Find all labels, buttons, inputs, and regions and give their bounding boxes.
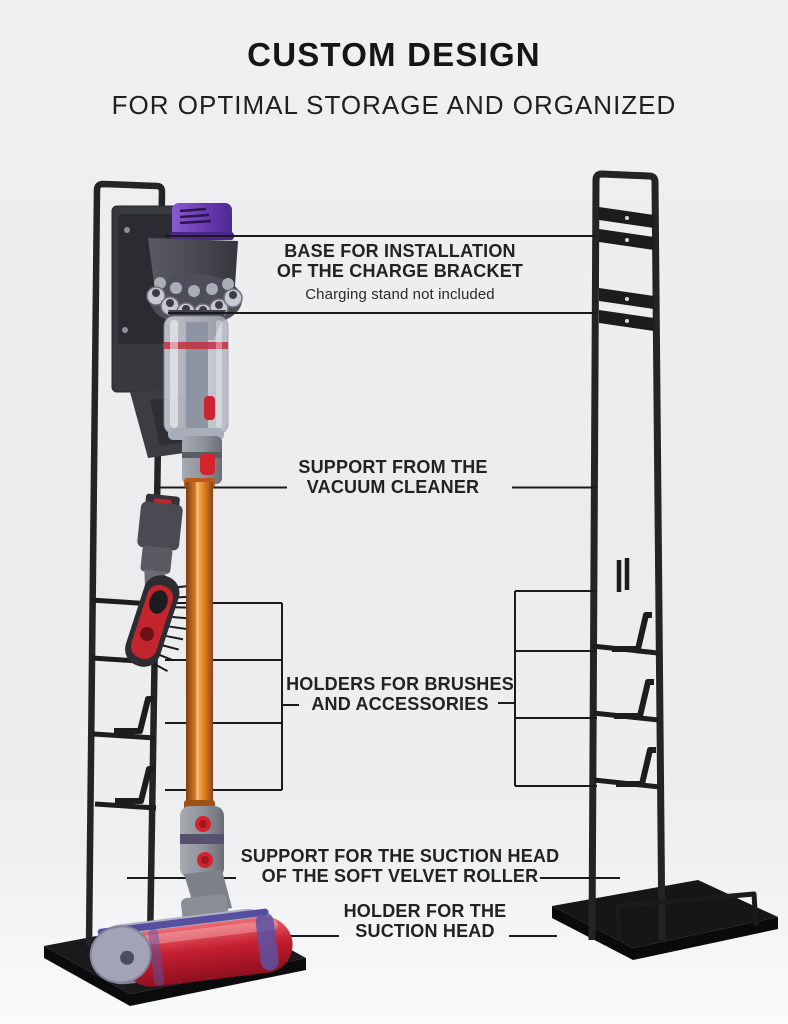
callout-suction-support-line1: SUPPORT FOR THE SUCTION HEAD [226,846,574,866]
callout-charge-note: Charging stand not included [245,285,555,305]
callout-charge-line1: BASE FOR INSTALLATION [245,241,555,261]
callout-charge-bracket: BASE FOR INSTALLATION OF THE CHARGE BRAC… [245,241,555,305]
callout-vacuum-support-line1: SUPPORT FROM THE [262,457,524,477]
bin-release-trigger [204,396,215,420]
right-hook-3 [616,750,656,784]
callout-suction-support-line2: OF THE SOFT VELVET ROLLER [226,866,574,886]
right-hook-1 [612,615,652,649]
right-hook-2 [614,682,654,716]
wand-tube [184,478,215,810]
header: CUSTOM DESIGN FOR OPTIMAL STORAGE AND OR… [0,0,788,121]
elbow-joint [180,806,224,878]
page-title: CUSTOM DESIGN [0,36,788,74]
right-hook-top [619,558,627,592]
clear-bin [164,316,228,440]
callout-holders-line1: HOLDERS FOR BRUSHES [278,674,522,694]
page-subtitle: FOR OPTIMAL STORAGE AND ORGANIZED [0,90,788,121]
wand-neck [182,436,222,484]
left-hook-lower [115,769,155,801]
callout-suction-holder-line2: SUCTION HEAD [330,921,520,941]
left-hook-upper [114,699,154,731]
callout-vacuum-support-line2: VACUUM CLEANER [262,477,524,497]
callout-suction-support: SUPPORT FOR THE SUCTION HEAD OF THE SOFT… [226,846,574,886]
right-stand [552,174,778,960]
callout-suction-holder-line1: HOLDER FOR THE [330,901,520,921]
callout-holders-line2: AND ACCESSORIES [278,694,522,714]
callout-holders: HOLDERS FOR BRUSHES AND ACCESSORIES [278,674,522,714]
infographic: CUSTOM DESIGN FOR OPTIMAL STORAGE AND OR… [0,0,788,1024]
callout-vacuum-support: SUPPORT FROM THE VACUUM CLEANER [262,457,524,497]
callout-charge-line2: OF THE CHARGE BRACKET [245,261,555,281]
filter-cap [170,203,234,240]
callout-suction-holder: HOLDER FOR THE SUCTION HEAD [330,901,520,941]
